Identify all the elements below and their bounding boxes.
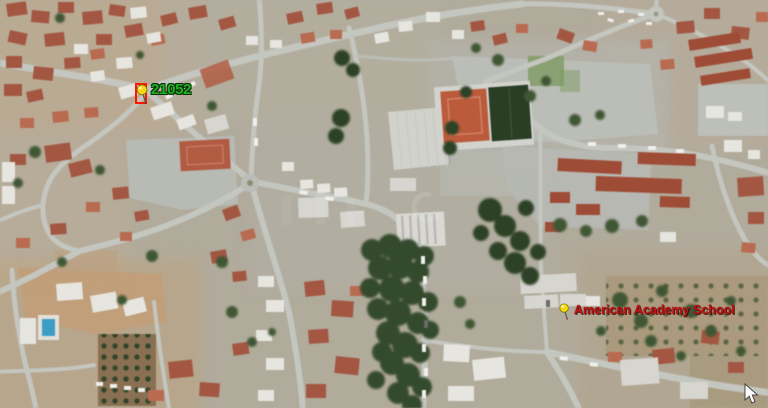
mouse-cursor-icon	[743, 383, 759, 405]
satellite-imagery	[0, 0, 768, 408]
yellow-pushpin-icon[interactable]	[559, 303, 570, 321]
swimming-pool	[38, 315, 59, 340]
school-name-label: American Academy School	[574, 304, 735, 317]
satellite-map[interactable]: 21052 American Academy School	[0, 0, 768, 408]
plot-number-label: 21052	[151, 82, 191, 97]
yellow-pushpin-icon[interactable]	[136, 84, 149, 105]
